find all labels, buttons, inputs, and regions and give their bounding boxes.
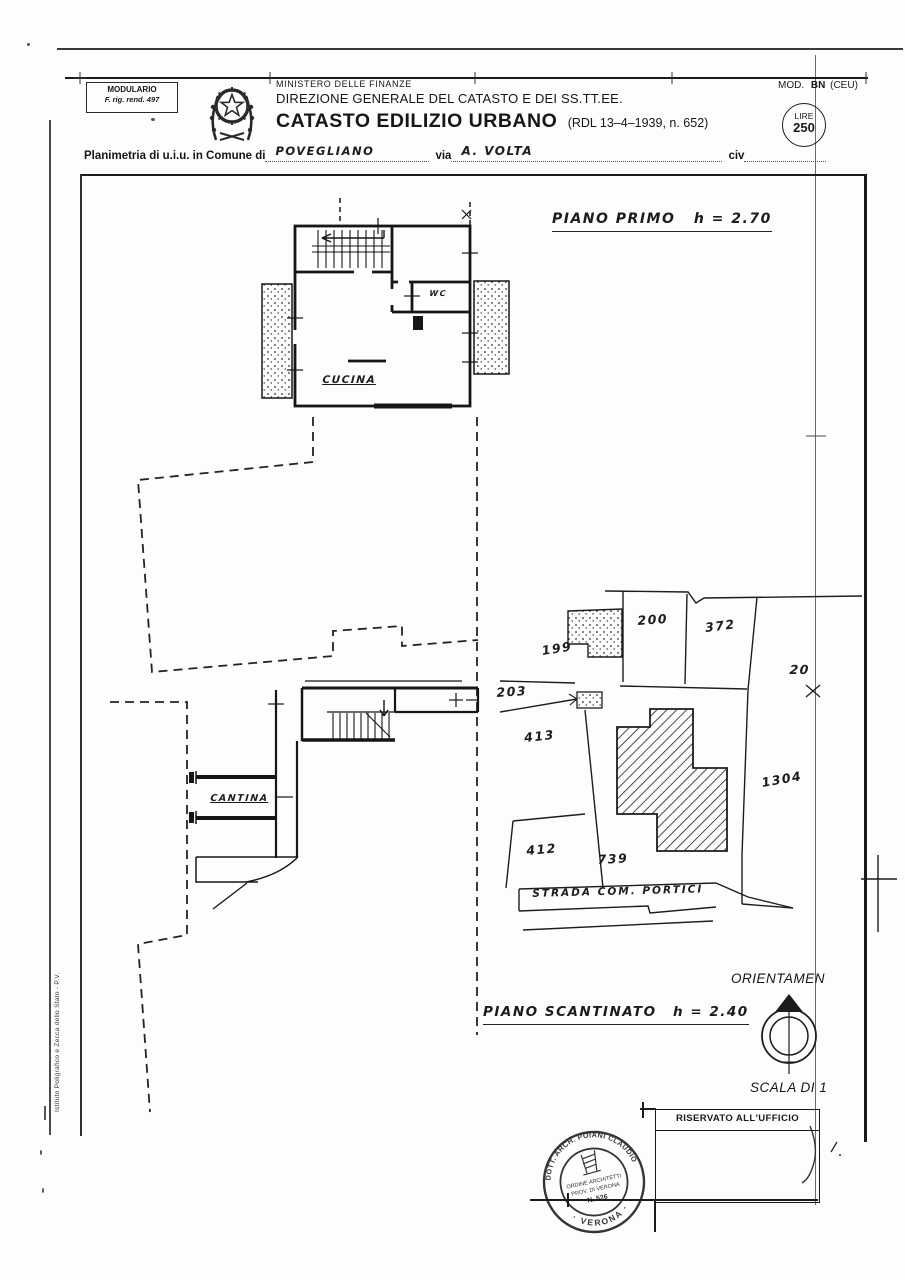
architect-stamp: DOTT. ARCH. POIANI CLAUDIO · VERONA · OR… [534,1121,653,1241]
compass-icon [762,994,816,1074]
parcel-label-413: 413 [523,727,555,745]
svg-text:· VERONA ·: · VERONA · [569,1201,633,1234]
caption-basement: PIANO SCANTINATO h = 2.40 [483,1003,749,1025]
svg-text:DOTT. ARCH. POIANI CLAUDIO: DOTT. ARCH. POIANI CLAUDIO [535,1121,639,1182]
edge-number-label: 20 [789,662,810,677]
registration-marks [74,72,866,84]
room-label-wc: WC [429,289,447,298]
office-box-bottom-line [530,1199,818,1201]
scanned-cadastral-form: MODULARIO F. rig. rend. 497 MINISTERO DE… [0,0,905,1280]
parcel-label-412: 412 [526,840,558,858]
parcel-label-739: 739 [597,850,628,867]
stamp-arc-bottom: · VERONA · [569,1201,633,1234]
caption-first-floor: PIANO PRIMO h = 2.70 [552,210,772,232]
stamp-arc-top: DOTT. ARCH. POIANI CLAUDIO [535,1121,639,1182]
office-box-label: RISERVATO ALL'UFFICIO [656,1110,819,1131]
parcel-label-200: 200 [637,611,669,628]
boundary-dashed [110,417,478,1112]
scale-label: SCALA DI 1 [750,1080,827,1095]
room-label-cucina: CUCINA [322,374,377,386]
printer-credit: Istituto Poligrafico e Zecca dello Stato… [54,942,64,1112]
office-box: RISERVATO ALL'UFFICIO [655,1109,820,1203]
orientation-label: ORIENTAMEN [731,971,825,986]
room-label-cantina: CANTINA [210,793,269,804]
parcel-label-203: 203 [496,683,528,700]
first-floor-plan [262,198,509,406]
